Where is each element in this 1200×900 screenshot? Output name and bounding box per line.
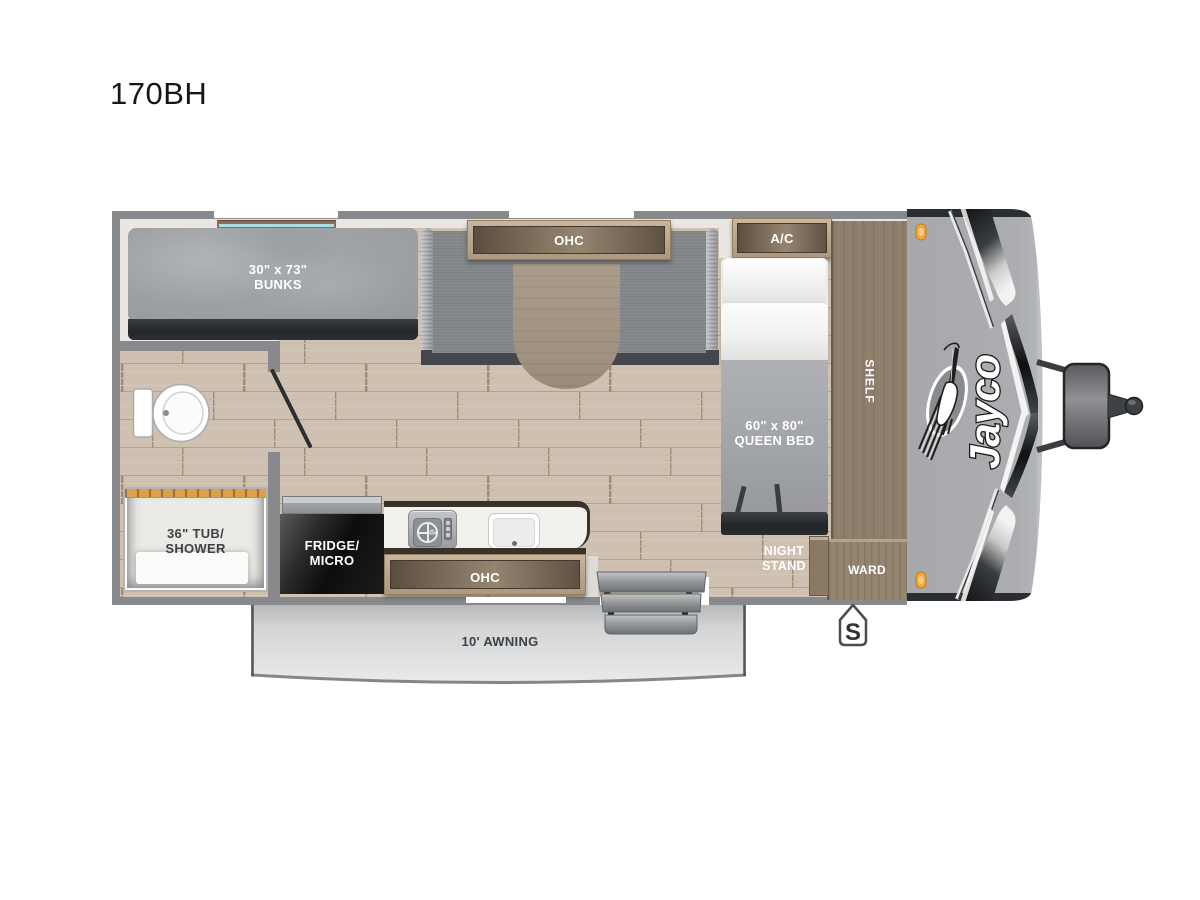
svg-text:Jayco: Jayco: [961, 355, 1008, 469]
svg-text:S: S: [845, 619, 861, 646]
svg-text:10' AWNING: 10' AWNING: [461, 634, 538, 649]
